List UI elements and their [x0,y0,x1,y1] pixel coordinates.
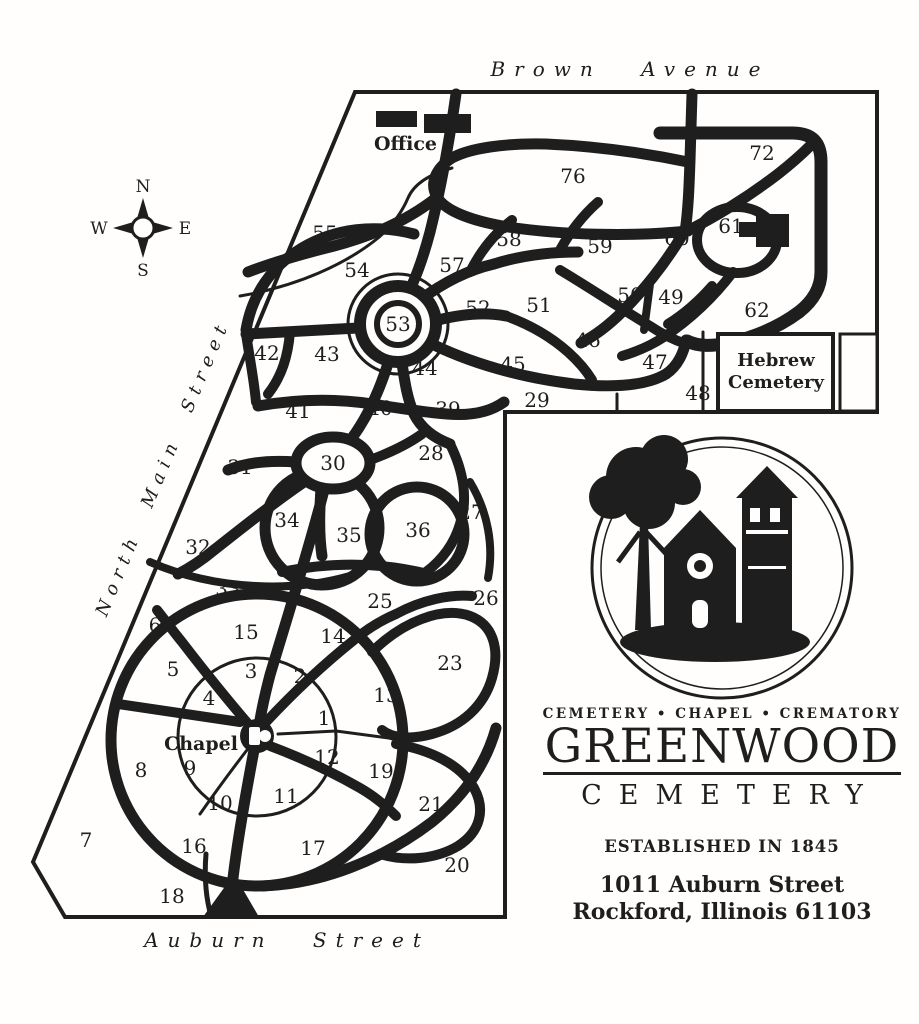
road-segment [470,482,490,578]
brand-name: GREENWOOD [532,723,912,771]
section-label-39: 39 [435,397,460,421]
compass-circle [132,217,154,239]
lane-segment [205,854,211,916]
section-label-40: 40 [367,396,392,420]
logo-tower-window [770,508,780,522]
hebrew-cemetery-label-line1: Hebrew [737,350,815,371]
office-building-icon [376,111,417,127]
section-label-6: 6 [149,613,162,637]
section-label-53: 53 [385,312,410,336]
section-label-28: 28 [418,441,443,465]
compass-w-label: W [90,219,108,239]
section-label-14: 14 [320,624,345,648]
section-label-8: 8 [135,758,148,782]
section-label-34: 34 [274,508,299,532]
section-label-7: 7 [80,828,93,852]
section-label-49: 49 [658,285,683,309]
hebrew-cemetery: Hebrew Cemetery [718,334,877,411]
brand-address-line2: Rockford, Illinois 61103 [532,899,912,927]
section-label-19: 19 [368,759,393,783]
hebrew-cemetery-label-line2: Cemetery [728,372,825,393]
chapel-label: Chapel [164,733,238,755]
road-segment [685,94,692,232]
section-label-57: 57 [439,253,464,277]
section-label-25: 25 [367,589,392,613]
section-label-26: 26 [473,586,498,610]
section-label-42: 42 [254,341,279,365]
cemetery-map-page: Office Hebrew Cemetery N S W E Brown Ave… [0,0,919,1024]
section-label-11: 11 [273,784,298,808]
road-segment [434,144,688,235]
section-label-20: 20 [444,853,469,877]
compass-rose: N S W E [90,177,191,281]
section-label-60: 60 [664,226,689,250]
building-icon [739,214,789,247]
chapel-hub [240,719,274,753]
section-label-59: 59 [587,234,612,258]
section-label-54: 54 [344,258,369,282]
street-label-auburn-street: Auburn Street [142,928,430,952]
logo-tower-band [746,530,788,534]
street-label-north-main-street: North Main Street [91,316,234,620]
logo-medallion [589,435,852,698]
brand-address: 1011 Auburn Street Rockford, Illinois 61… [532,872,912,927]
section-label-55: 55 [312,221,337,245]
brand-subtitle: CEMETERY [532,780,912,811]
section-label-72: 72 [749,141,774,165]
section-label-21: 21 [418,792,443,816]
compass-e-label: E [179,219,191,239]
logo-chapel-illustration [589,435,810,662]
compass-s-label: S [137,261,149,281]
logo-chapel-door [692,600,708,628]
section-label-32: 32 [185,535,210,559]
brand-block: CEMETERY • CHAPEL • CREMATORY GREENWOOD … [532,706,912,927]
building-square [756,214,789,247]
section-label-45: 45 [500,352,525,376]
section-label-27: 27 [458,500,483,524]
chapel-icon-apse [259,730,271,742]
section-label-5: 5 [167,657,180,681]
logo-tower-band [748,566,786,569]
section-label-2: 2 [294,664,307,688]
section-label-31: 31 [227,455,252,479]
section-label-29: 29 [524,388,549,412]
section-label-35: 35 [336,523,361,547]
section-label-16: 16 [181,834,206,858]
section-label-41: 41 [285,399,310,423]
section-label-44: 44 [412,356,437,380]
section-label-30: 30 [320,451,345,475]
section-label-62: 62 [744,298,769,322]
logo-tower [742,498,792,632]
section-label-43: 43 [314,342,339,366]
brand-address-line1: 1011 Auburn Street [532,872,912,900]
logo-tree-foliage [665,469,701,505]
section-label-47: 47 [642,350,667,374]
logo-rose-window-center [694,560,706,572]
logo-tower-window [750,508,760,522]
section-label-15: 15 [233,620,258,644]
street-label-brown-avenue: Brown Avenue [489,57,769,81]
section-label-9: 9 [184,756,197,780]
section-label-61: 61 [718,214,743,238]
chapel-icon [249,727,260,745]
hebrew-cemetery-annex-box [840,334,877,411]
road-segment [246,328,358,334]
section-label-50: 50 [617,283,642,307]
logo-tower-spire [736,466,798,498]
section-label-46: 46 [575,328,600,352]
road-segment [370,434,422,460]
brand-established: ESTABLISHED IN 1845 [532,837,912,856]
section-label-51: 51 [526,293,551,317]
section-label-48: 48 [685,381,710,405]
office-buildings [376,111,471,133]
office-building-icon [424,114,471,133]
office-label: Office [374,133,437,155]
lane-segment [278,731,336,734]
section-label-1: 1 [318,706,331,730]
section-label-52: 52 [465,296,490,320]
section-label-13: 13 [373,683,398,707]
section-label-76: 76 [560,164,585,188]
section-label-33: 33 [215,577,240,601]
section-label-58: 58 [496,227,521,251]
section-label-10: 10 [207,791,232,815]
road-segment [494,252,578,264]
section-label-36: 36 [405,518,430,542]
section-label-3: 3 [245,659,258,683]
section-label-12: 12 [314,745,339,769]
compass-n-label: N [136,177,151,197]
section-label-17: 17 [300,836,325,860]
section-label-23: 23 [437,651,462,675]
section-label-18: 18 [159,884,184,908]
section-label-4: 4 [203,686,216,710]
